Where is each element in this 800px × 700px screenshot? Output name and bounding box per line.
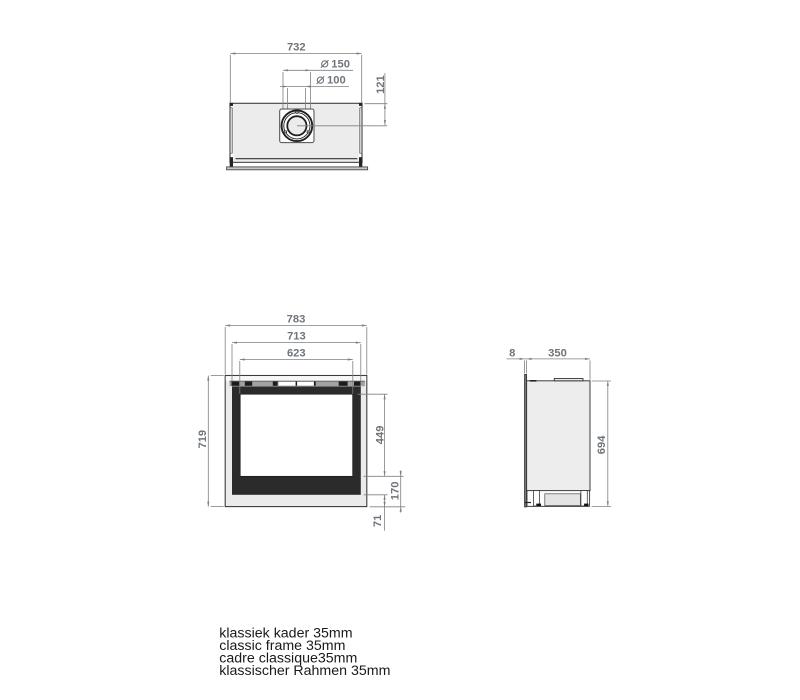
svg-text:713: 713 [287, 331, 306, 343]
svg-text:8: 8 [509, 347, 515, 359]
svg-text:623: 623 [287, 348, 306, 360]
svg-text:klassischer Rahmen 35mm: klassischer Rahmen 35mm [219, 663, 390, 679]
svg-text:121: 121 [375, 75, 387, 94]
svg-text:170: 170 [390, 482, 402, 501]
svg-text:719: 719 [197, 430, 209, 449]
svg-text:783: 783 [287, 314, 306, 326]
svg-text:71: 71 [372, 515, 384, 527]
svg-text:694: 694 [596, 435, 608, 454]
svg-text:100: 100 [327, 75, 346, 87]
svg-text:449: 449 [375, 426, 387, 445]
svg-text:150: 150 [331, 58, 350, 70]
svg-text:732: 732 [287, 41, 306, 53]
svg-text:350: 350 [548, 347, 567, 359]
